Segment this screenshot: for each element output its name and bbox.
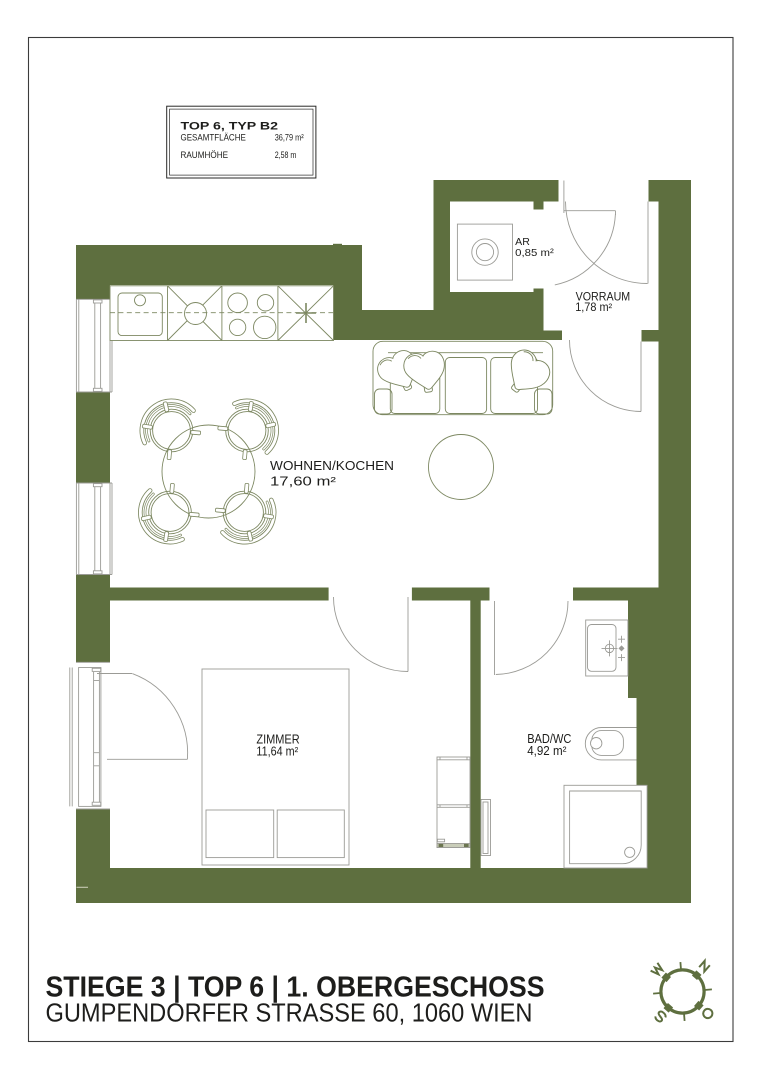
svg-text:1,78 m²: 1,78 m² [575,301,612,314]
svg-text:4,92 m²: 4,92 m² [527,743,567,758]
svg-text:GUMPENDORFER STRASSE 60, 1060: GUMPENDORFER STRASSE 60, 1060 WIEN [46,997,533,1027]
svg-text:RAUMHÖHE: RAUMHÖHE [181,150,229,160]
svg-text:WOHNEN/KOCHEN: WOHNEN/KOCHEN [270,458,394,473]
svg-text:AR: AR [515,237,530,248]
svg-text:TOP 6, TYP B2: TOP 6, TYP B2 [181,120,279,132]
svg-text:11,64 m²: 11,64 m² [256,743,298,758]
svg-text:GESAMTFLÄCHE: GESAMTFLÄCHE [181,132,246,142]
svg-text:2,58 m: 2,58 m [275,150,297,160]
svg-text:0,85 m²: 0,85 m² [515,248,554,259]
svg-text:36,79 m²: 36,79 m² [275,132,304,142]
svg-text:17,60 m²: 17,60 m² [270,473,337,488]
